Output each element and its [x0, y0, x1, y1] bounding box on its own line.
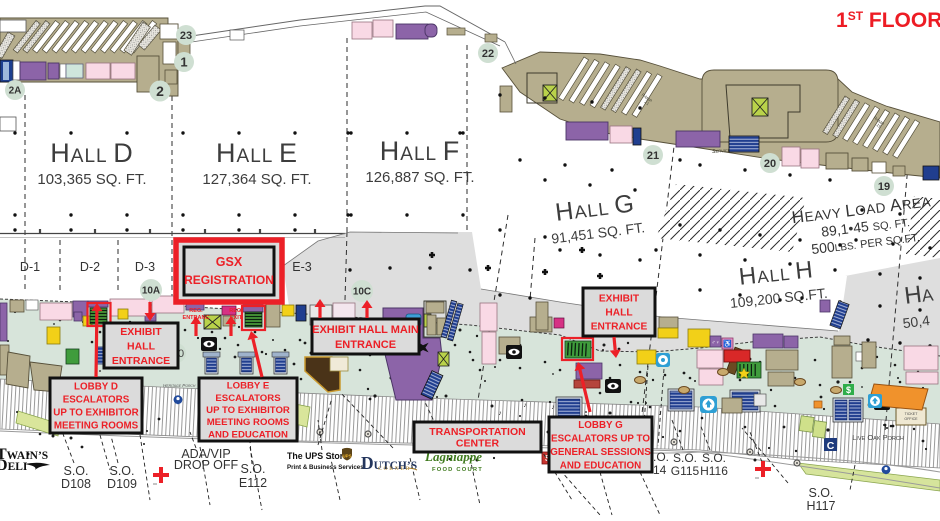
svg-text:23: 23: [180, 30, 192, 42]
svg-text:OFFICE: OFFICE: [904, 417, 918, 421]
svg-text:UP TO EXHIBITOR: UP TO EXHIBITOR: [53, 408, 138, 419]
svg-text:REG.: REG.: [189, 308, 203, 314]
svg-text:21: 21: [647, 150, 659, 162]
svg-text:ESCALATORS: ESCALATORS: [63, 395, 130, 406]
svg-text:UP TO EXHIBITOR: UP TO EXHIBITOR: [206, 405, 290, 416]
svg-text:ENTRANCE: ENTRANCE: [112, 355, 170, 367]
svg-text:CORNER: CORNER: [378, 466, 411, 472]
svg-text:D109: D109: [107, 477, 137, 491]
svg-text:20: 20: [764, 158, 776, 170]
svg-text:♪: ♪: [498, 410, 502, 417]
svg-text:ENTRANCE: ENTRANCE: [335, 339, 396, 351]
svg-text:G115: G115: [671, 464, 700, 478]
svg-text:GSX: GSX: [216, 255, 243, 269]
svg-text:HALL: HALL: [127, 340, 156, 352]
svg-text:LOBBY G: LOBBY G: [578, 420, 623, 431]
svg-text:REG.: REG.: [229, 308, 243, 314]
svg-text:♿: ♿: [723, 339, 732, 348]
svg-text:CENTER: CENTER: [456, 438, 500, 450]
svg-text:Print & Business Services: Print & Business Services: [287, 464, 364, 471]
svg-text:ENTRANCE: ENTRANCE: [591, 322, 648, 333]
svg-text:UPS: UPS: [342, 454, 351, 459]
svg-text:2A: 2A: [9, 86, 22, 97]
svg-text:The UPS Store: The UPS Store: [287, 451, 348, 461]
svg-text:LOBBY D: LOBBY D: [74, 382, 118, 393]
svg-text:S.O.: S.O.: [808, 486, 833, 500]
svg-text:19: 19: [878, 181, 890, 193]
svg-text:AND EDUCATION: AND EDUCATION: [560, 460, 641, 471]
svg-text:.O.: .O.: [653, 450, 669, 464]
svg-text:D108: D108: [61, 477, 91, 491]
svg-text:♪: ♪: [551, 404, 555, 411]
svg-text:C: C: [827, 440, 835, 452]
svg-text:EXHIBIT: EXHIBIT: [599, 294, 640, 305]
svg-text:REGISTRATION: REGISTRATION: [184, 273, 274, 287]
svg-text:TICKET: TICKET: [905, 412, 919, 416]
svg-text:D-2: D-2: [80, 260, 100, 274]
svg-text:TRANSPORTATION: TRANSPORTATION: [429, 426, 525, 438]
svg-text:S.O.: S.O.: [240, 462, 265, 476]
svg-text:MEETING ROOMS: MEETING ROOMS: [207, 417, 290, 428]
svg-text:♪: ♪: [523, 402, 527, 409]
svg-text:FOOD COURT: FOOD COURT: [432, 467, 483, 473]
svg-text:1: 1: [180, 55, 187, 70]
svg-text:14: 14: [653, 463, 667, 477]
svg-text:E-3: E-3: [292, 260, 312, 274]
svg-text:10C: 10C: [353, 287, 371, 298]
svg-text:EXHIBIT HALL MAIN: EXHIBIT HALL MAIN: [312, 324, 419, 336]
svg-text:126,887 SQ. FT.: 126,887 SQ. FT.: [365, 169, 474, 186]
svg-text:2: 2: [156, 83, 164, 99]
svg-text:GENERAL SESSIONS: GENERAL SESSIONS: [550, 447, 651, 458]
svg-text:HALL: HALL: [605, 308, 632, 319]
svg-text:ESCALATORS: ESCALATORS: [215, 393, 281, 404]
svg-text:LOBBY E: LOBBY E: [227, 381, 270, 392]
svg-text:S.O.: S.O.: [673, 451, 697, 465]
svg-text:♪: ♪: [658, 410, 662, 417]
svg-text:$: $: [846, 385, 851, 395]
svg-text:MEETING ROOMS: MEETING ROOMS: [54, 421, 139, 432]
svg-text:D-3: D-3: [135, 260, 155, 274]
svg-text:E112: E112: [239, 476, 267, 490]
svg-text:H116: H116: [700, 464, 728, 478]
svg-text:50,4: 50,4: [902, 312, 931, 331]
svg-text:127,364 SQ. FT.: 127,364 SQ. FT.: [202, 171, 311, 188]
svg-text:AND EDUCATION: AND EDUCATION: [208, 429, 288, 440]
svg-text:S.O.: S.O.: [702, 451, 726, 465]
svg-text:22: 22: [482, 48, 494, 60]
svg-text:S.O.: S.O.: [109, 464, 134, 478]
svg-text:103,365 SQ. FT.: 103,365 SQ. FT.: [37, 171, 146, 188]
svg-text:♂♀: ♂♀: [711, 340, 719, 346]
svg-text:S.O.: S.O.: [63, 464, 88, 478]
svg-text:H117: H117: [807, 499, 836, 513]
svg-text:ESCALATORS UP TO: ESCALATORS UP TO: [551, 433, 650, 444]
svg-text:10A: 10A: [142, 286, 160, 297]
svg-text:D-1: D-1: [20, 260, 40, 274]
svg-text:HERITAGE PORCH: HERITAGE PORCH: [163, 383, 196, 388]
svg-text:EXHIBIT: EXHIBIT: [120, 326, 162, 338]
svg-text:DROP OFF: DROP OFF: [174, 458, 239, 472]
